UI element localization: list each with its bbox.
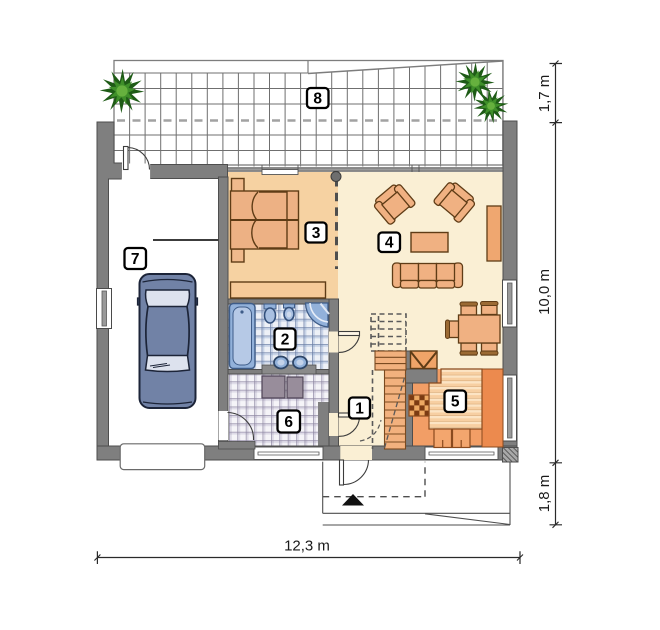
svg-text:8: 8 xyxy=(313,91,322,108)
svg-text:3: 3 xyxy=(312,225,321,242)
svg-text:5: 5 xyxy=(451,394,460,411)
svg-text:1,8 m: 1,8 m xyxy=(536,475,553,513)
svg-text:1,7 m: 1,7 m xyxy=(536,75,553,113)
svg-text:2: 2 xyxy=(281,332,290,349)
svg-text:4: 4 xyxy=(385,235,394,252)
svg-text:7: 7 xyxy=(131,251,140,268)
svg-text:12,3 m: 12,3 m xyxy=(284,538,330,555)
svg-text:6: 6 xyxy=(284,414,293,431)
svg-text:10,0 m: 10,0 m xyxy=(536,269,553,315)
svg-text:1: 1 xyxy=(355,401,364,418)
